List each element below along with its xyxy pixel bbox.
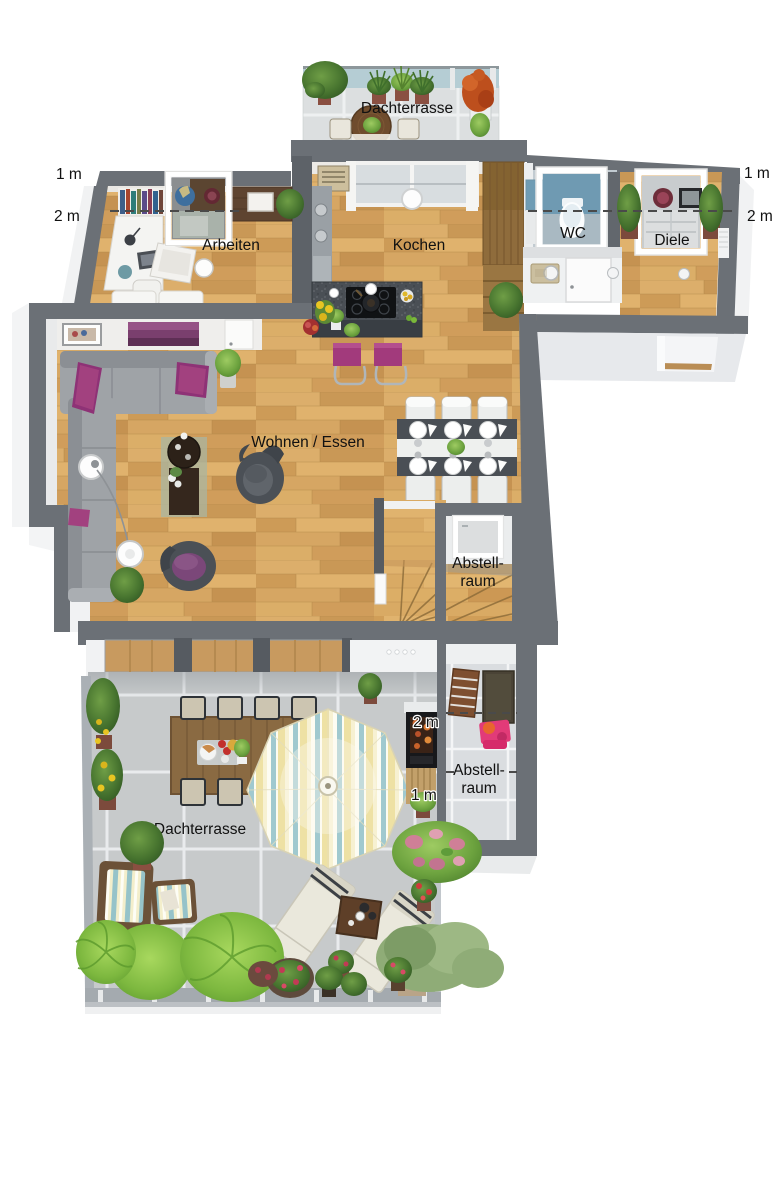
svg-text:raum: raum <box>460 573 495 590</box>
svg-text:Abstell-: Abstell- <box>453 762 505 779</box>
svg-text:Dachterrasse: Dachterrasse <box>361 100 453 117</box>
svg-text:WC: WC <box>560 225 586 242</box>
svg-text:Kochen: Kochen <box>393 237 446 254</box>
svg-text:2 m: 2 m <box>747 208 773 225</box>
svg-text:Diele: Diele <box>654 232 689 249</box>
svg-text:raum: raum <box>461 780 496 797</box>
svg-text:1 m: 1 m <box>744 165 770 182</box>
svg-text:Wohnen / Essen: Wohnen / Essen <box>251 434 364 451</box>
svg-text:Abstell-: Abstell- <box>452 555 504 572</box>
svg-text:1 m: 1 m <box>411 787 437 804</box>
svg-text:1 m: 1 m <box>56 166 82 183</box>
svg-text:Arbeiten: Arbeiten <box>202 237 260 254</box>
svg-text:2 m: 2 m <box>413 714 439 731</box>
svg-text:2 m: 2 m <box>54 208 80 225</box>
svg-text:Dachterrasse: Dachterrasse <box>154 821 246 838</box>
